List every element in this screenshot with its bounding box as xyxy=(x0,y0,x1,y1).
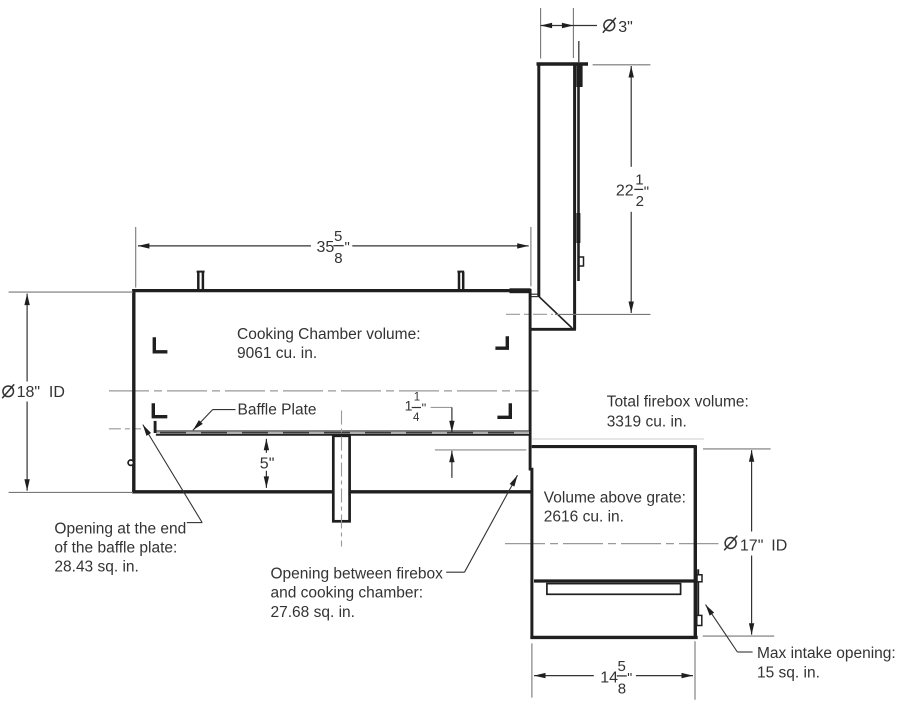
svg-text:1: 1 xyxy=(635,171,643,188)
svg-text:15 sq. in.: 15 sq. in. xyxy=(757,665,820,682)
svg-text:5: 5 xyxy=(334,228,342,245)
svg-text:Cooking Chamber volume:: Cooking Chamber volume: xyxy=(237,326,421,343)
svg-text:35: 35 xyxy=(317,239,335,256)
svg-text:2616 cu. in.: 2616 cu. in. xyxy=(544,509,624,526)
svg-text:14: 14 xyxy=(600,670,618,687)
svg-text:27.68 sq. in.: 27.68 sq. in. xyxy=(271,604,355,621)
svg-text:2: 2 xyxy=(636,193,644,210)
svg-text:ID: ID xyxy=(49,384,65,401)
svg-text:8: 8 xyxy=(618,680,626,697)
svg-text:5": 5" xyxy=(260,455,275,472)
svg-text:": " xyxy=(422,401,427,416)
svg-text:Volume above grate:: Volume above grate: xyxy=(544,489,686,506)
svg-text:3": 3" xyxy=(618,19,633,36)
svg-text:22: 22 xyxy=(616,182,634,199)
svg-text:17": 17" xyxy=(740,537,763,554)
svg-text:1: 1 xyxy=(414,391,420,403)
svg-text:Total firebox volume:: Total firebox volume: xyxy=(607,393,749,410)
svg-text:": " xyxy=(627,670,632,686)
svg-text:4: 4 xyxy=(413,412,420,424)
svg-text:8: 8 xyxy=(334,250,342,267)
svg-text:Opening between firebox: Opening between firebox xyxy=(271,565,444,582)
svg-text:Max intake opening:: Max intake opening: xyxy=(757,645,896,662)
svg-text:Baffle Plate: Baffle Plate xyxy=(238,402,317,419)
svg-text:28.43 sq. in.: 28.43 sq. in. xyxy=(54,559,138,576)
svg-text:Opening at the end: Opening at the end xyxy=(54,521,186,538)
svg-text:5: 5 xyxy=(618,658,626,675)
svg-text:of the baffle plate:: of the baffle plate: xyxy=(54,540,177,557)
svg-text:9061 cu. in.: 9061 cu. in. xyxy=(237,345,317,362)
svg-text:": " xyxy=(644,184,649,201)
svg-text:1: 1 xyxy=(405,398,413,414)
svg-text:ID: ID xyxy=(771,537,787,554)
svg-text:and cooking chamber:: and cooking chamber: xyxy=(271,585,424,602)
svg-text:18": 18" xyxy=(17,384,40,401)
svg-text:3319 cu. in.: 3319 cu. in. xyxy=(607,413,687,430)
svg-text:": " xyxy=(345,239,350,256)
